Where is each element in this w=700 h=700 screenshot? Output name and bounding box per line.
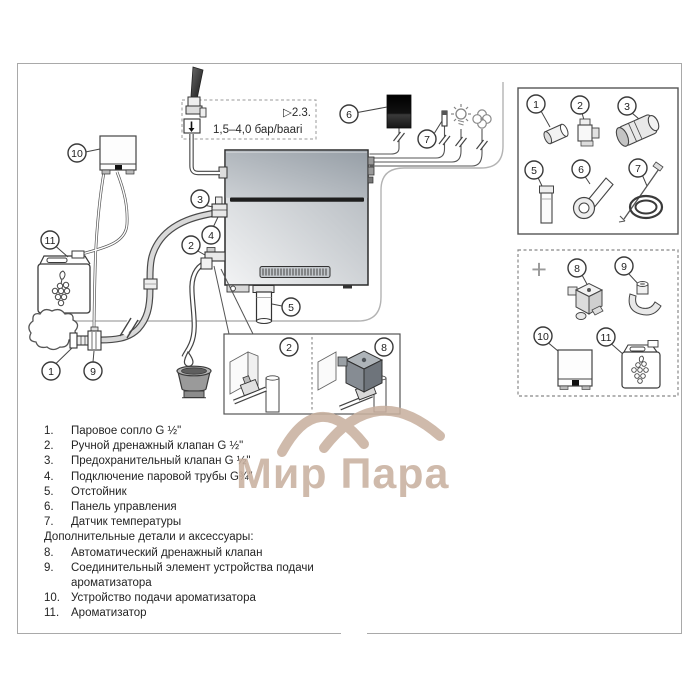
svg-text:10: 10	[71, 148, 83, 160]
svg-text:7: 7	[424, 134, 430, 146]
callout-10: 10	[68, 144, 100, 162]
svg-text:2: 2	[577, 100, 583, 112]
svg-text:3: 3	[197, 194, 203, 206]
legend-item-2: 2.Ручной дренажный клапан G ½"	[44, 439, 474, 454]
legend-item-number: 7.	[44, 515, 71, 530]
legend-item-11: 11.Ароматизатор	[44, 606, 474, 621]
legend-item-number: 2.	[44, 439, 71, 454]
drain-funnel	[177, 366, 211, 398]
drain-hose	[184, 263, 205, 357]
manual-drain-valve	[201, 248, 225, 270]
callout-6: 6	[340, 105, 387, 123]
control-panel	[387, 95, 411, 128]
callout-7: 7	[418, 121, 442, 148]
svg-text:9: 9	[90, 366, 96, 378]
svg-text:6: 6	[578, 164, 584, 176]
legend-item-4: 4.Подключение паровой трубы G¾"	[44, 470, 474, 485]
legend-item-8: 8.Автоматический дренажный клапан	[44, 546, 474, 561]
sediment-trap	[253, 286, 274, 324]
legend-item-text: Предохранительный клапан G ½"	[71, 454, 371, 469]
steam-nozzle	[70, 333, 90, 348]
svg-text:10: 10	[537, 331, 549, 343]
aroma-canister	[38, 251, 90, 313]
legend-item-number: 8.	[44, 546, 71, 561]
callout-4: 4	[202, 217, 220, 244]
plus-icon: +	[531, 255, 547, 285]
svg-text:11: 11	[45, 235, 56, 247]
legend-item-number: 4.	[44, 470, 71, 485]
legend-item-number: 6.	[44, 500, 71, 515]
detail-inset	[224, 334, 400, 414]
vent-grille	[260, 267, 330, 278]
svg-text:11: 11	[601, 332, 612, 344]
inlet-pressure-label: 1,5–4,0 бар/baari	[213, 124, 302, 136]
svg-text:5: 5	[531, 165, 537, 177]
callout-8-inset: 8	[375, 338, 393, 356]
svg-text:6: 6	[346, 109, 352, 121]
legend-item-5: 5.Отстойник	[44, 485, 474, 500]
legend-item-text: Отстойник	[71, 485, 371, 500]
svg-text:5: 5	[288, 302, 294, 314]
temperature-sensor	[442, 111, 447, 126]
legend-item-6: 6.Панель управления	[44, 500, 474, 515]
installation-diagram-page: ▷2.3. 1,5–4,0 бар/baari	[0, 0, 700, 700]
svg-text:2: 2	[286, 342, 292, 354]
svg-text:2: 2	[188, 240, 194, 252]
svg-text:9: 9	[621, 261, 627, 273]
cable-break-marks	[394, 132, 488, 150]
legend-item-text: Подключение паровой трубы G¾"	[71, 470, 371, 485]
svg-text:4: 4	[208, 230, 214, 242]
legend-item-text: Соединительный элемент устройства подачи…	[71, 561, 371, 591]
callout-1: 1	[42, 348, 72, 380]
svg-text:7: 7	[635, 163, 641, 175]
parts-box-included: 1 2 3	[518, 88, 678, 234]
aroma-feeder-box	[100, 136, 136, 174]
legend-item-text: Ароматизатор	[71, 606, 371, 621]
legend-item-3: 3.Предохранительный клапан G ½"	[44, 454, 474, 469]
legend: 1.Паровое сопло G ½" 2.Ручной дренажный …	[44, 424, 474, 622]
legend-item-number: 11.	[44, 606, 71, 621]
legend-item-number: 5.	[44, 485, 71, 500]
frame-gap	[341, 627, 367, 639]
callout-11: 11	[41, 231, 68, 257]
inlet-reference-label: ▷2.3.	[283, 107, 311, 119]
unit-divider-band	[230, 198, 364, 202]
inlet-pipe-blade	[191, 67, 203, 99]
svg-text:1: 1	[533, 99, 539, 111]
fan-icon	[473, 110, 491, 128]
callout-3: 3	[191, 190, 213, 208]
svg-text:8: 8	[381, 342, 387, 354]
aroma-connector	[88, 327, 101, 350]
steam-generator-unit	[225, 150, 374, 292]
legend-item-text: Ручной дренажный клапан G ½"	[71, 439, 371, 454]
callout-9: 9	[84, 351, 102, 380]
light-icon	[451, 104, 471, 125]
legend-item-text: Паровое сопло G ½"	[71, 424, 371, 439]
legend-item-text: Датчик температуры	[71, 515, 371, 530]
legend-item-text: Устройство подачи ароматизатора	[71, 591, 371, 606]
legend-item-text: Автоматический дренажный клапан	[71, 546, 371, 561]
svg-text:1: 1	[48, 366, 54, 378]
callout-2: 2	[182, 236, 205, 255]
legend-item-text: Панель управления	[71, 500, 371, 515]
legend-item-number: 3.	[44, 454, 71, 469]
legend-item-9: 9.Соединительный элемент устройства пода…	[44, 561, 474, 591]
legend-section-header: Дополнительные детали и аксессуары:	[44, 530, 404, 545]
legend-item-number: 1.	[44, 424, 71, 439]
callout-2-inset: 2	[280, 338, 298, 356]
parts-box-optional: + 8 9	[518, 250, 678, 396]
water-inlet-valve	[184, 67, 220, 173]
legend-item-number: 9.	[44, 561, 71, 591]
water-inlet-connector	[219, 167, 227, 178]
legend-item-number: 10.	[44, 591, 71, 606]
svg-text:3: 3	[624, 101, 630, 113]
legend-item-7: 7.Датчик температуры	[44, 515, 474, 530]
svg-text:8: 8	[574, 263, 580, 275]
callout-5: 5	[272, 298, 300, 316]
legend-item-1: 1.Паровое сопло G ½"	[44, 424, 474, 439]
legend-item-10: 10.Устройство подачи ароматизатора	[44, 591, 474, 606]
